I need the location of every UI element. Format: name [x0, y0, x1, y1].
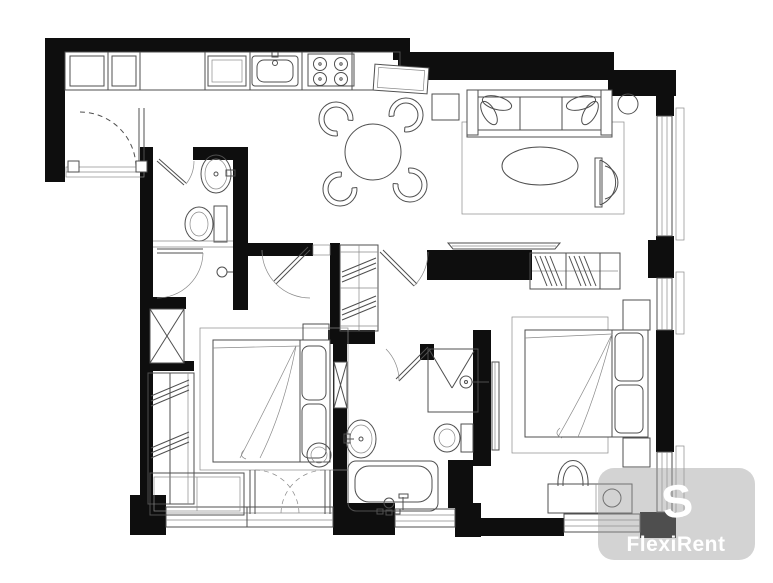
living-room — [448, 90, 638, 249]
sliding-panel — [492, 362, 499, 450]
door-handle — [217, 267, 233, 277]
bedside-shelf — [303, 324, 329, 340]
square-side-table — [432, 94, 459, 120]
dressing-door — [157, 249, 203, 298]
entry-door — [68, 108, 147, 172]
cabinet — [208, 56, 246, 86]
window-bottom-bathroom2 — [395, 509, 455, 527]
dining-chair — [319, 102, 353, 136]
watermark-brand-text: FlexiRent — [626, 533, 725, 556]
pedestal-basin — [344, 420, 376, 458]
oval-coffee-table — [502, 147, 578, 185]
wardrobe-master — [530, 253, 620, 289]
window-right-living — [657, 108, 684, 240]
vanity-chair — [558, 461, 588, 487]
cabinet — [70, 56, 104, 86]
appliance-box — [373, 64, 429, 94]
sofa — [467, 90, 612, 137]
round-side-table — [618, 94, 638, 114]
window-right-master-top — [657, 272, 684, 334]
tv-panel — [448, 243, 560, 249]
linen-closet-x — [150, 309, 184, 363]
wardrobe-bedroom1 — [148, 373, 194, 504]
master-door — [380, 250, 428, 286]
bedroom1-bed — [213, 340, 330, 462]
bathroom1-door — [157, 159, 194, 185]
stove — [308, 54, 354, 86]
dining-area — [319, 94, 459, 206]
shower-head — [460, 376, 472, 388]
kitchen-sink — [252, 52, 298, 86]
bedside-table — [623, 438, 650, 467]
kitchen-counter — [65, 52, 400, 90]
kitchen — [65, 52, 429, 94]
narrow-closet-x — [334, 362, 347, 408]
armchair — [595, 158, 618, 207]
toilet — [185, 206, 227, 242]
bedside-table — [623, 300, 650, 330]
floor-plan-page: S FlexiRent — [0, 0, 773, 583]
wash-basin — [201, 155, 235, 193]
entry-door-swing-arc — [80, 112, 136, 168]
wardrobe-central — [340, 245, 378, 331]
cabinet — [112, 56, 136, 86]
bathroom-1 — [157, 155, 235, 242]
threshold — [313, 245, 330, 255]
watermark-badge: S FlexiRent — [598, 468, 755, 560]
floor-plan: S FlexiRent — [0, 0, 773, 583]
entry — [66, 108, 147, 177]
toilet-2 — [434, 424, 473, 452]
master-bed — [525, 330, 648, 438]
round-dining-table — [345, 124, 401, 180]
